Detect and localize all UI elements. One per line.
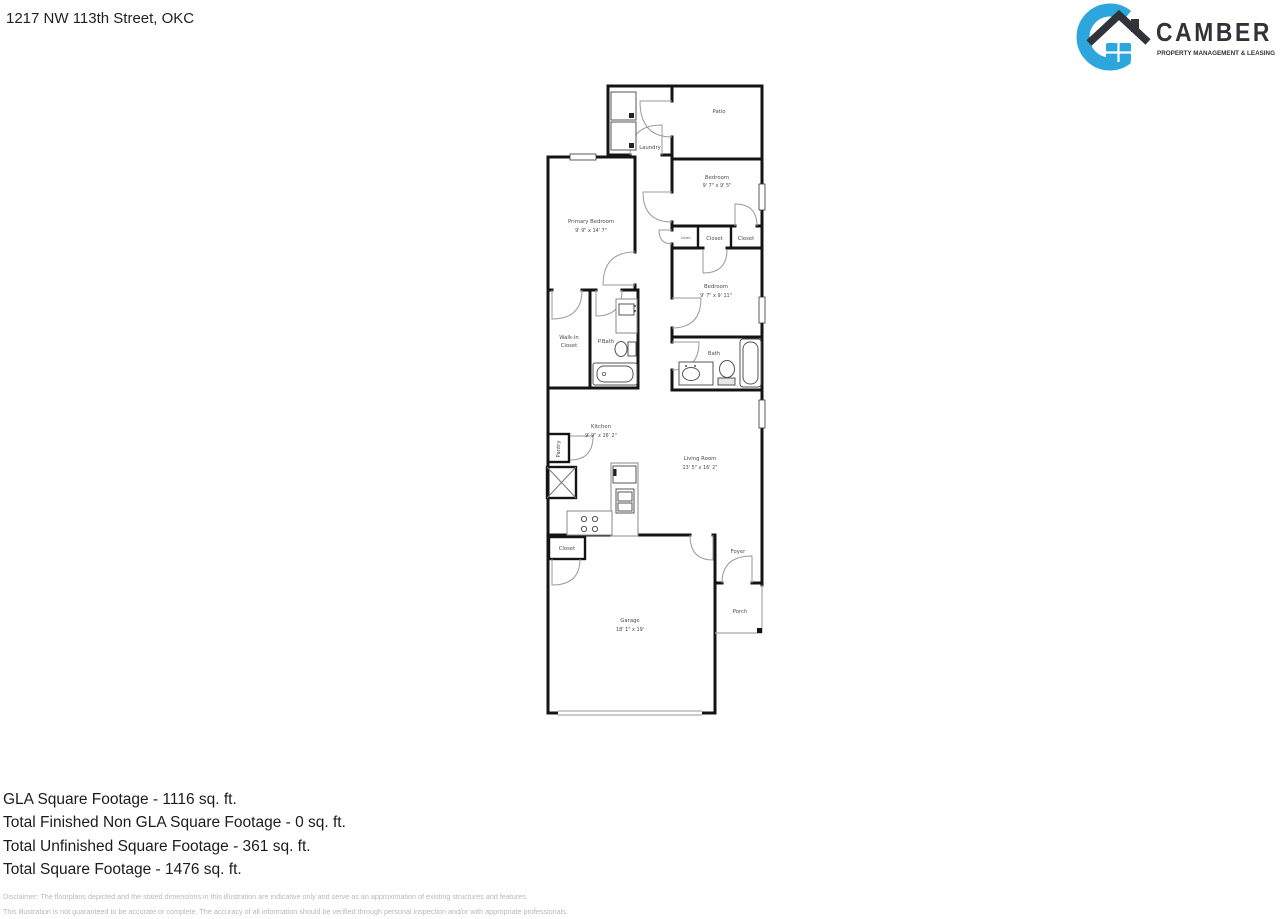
- unfinished-square-footage: Total Unfinished Square Footage - 361 sq…: [3, 835, 346, 858]
- room-label-linen: Linen: [681, 236, 690, 240]
- bath-toilet-icon: [720, 361, 735, 378]
- footage-summary: GLA Square Footage - 1116 sq. ft. Total …: [3, 788, 346, 881]
- room-label-laundry: Laundry: [639, 145, 661, 151]
- disclaimer: Disclaimer: The floorplans depicted and …: [3, 889, 568, 919]
- pbath-sink-icon: [619, 304, 634, 315]
- room-label-kitchen: Kitchen: [591, 424, 611, 430]
- window-icon: [759, 297, 765, 323]
- room-label-patio: Patio: [713, 109, 726, 115]
- room-label-garage: Garage: [620, 618, 639, 624]
- bath-toilet-tank: [718, 378, 735, 385]
- room-label-closet1: Closet: [706, 236, 723, 242]
- pbath-toilet-icon: [615, 342, 627, 357]
- floorplan-drawing: Laundry Patio Bedroom 9' 7" x 9' 5" Line…: [0, 0, 1280, 919]
- room-dims-living-room: 13' 5" x 16' 2": [683, 465, 718, 471]
- total-square-footage: Total Square Footage - 1476 sq. ft.: [3, 858, 346, 881]
- window-icon: [759, 400, 765, 428]
- room-label-bedroom2: Bedroom: [704, 284, 728, 290]
- room-label-pbath: P.Bath: [598, 339, 614, 345]
- gla-square-footage: GLA Square Footage - 1116 sq. ft.: [3, 788, 346, 811]
- room-label-closet2: Closet: [738, 236, 755, 242]
- room-label-bedroom1: Bedroom: [705, 175, 729, 181]
- floorplan-page: 1217 NW 113th Street, OKC CAMBER PROPERT…: [0, 0, 1280, 919]
- porch-post: [757, 628, 762, 633]
- room-dims-garage: 18' 1" x 19': [616, 627, 644, 633]
- room-label-pantry: Pantry: [556, 441, 562, 458]
- room-label-porch: Porch: [733, 609, 748, 615]
- room-label-walkin-2: Closet: [561, 343, 578, 349]
- room-label-bath: Bath: [708, 351, 720, 357]
- window-icon: [759, 184, 765, 210]
- disclaimer-line-1: Disclaimer: The floorplans depicted and …: [3, 889, 568, 904]
- pbath-toilet-tank: [628, 342, 636, 356]
- room-label-primary-bedroom: Primary Bedroom: [568, 219, 614, 225]
- bath-sink-icon: [683, 368, 700, 381]
- kitchen-counter-bottom: [567, 511, 612, 535]
- non-gla-square-footage: Total Finished Non GLA Square Footage - …: [3, 811, 346, 834]
- disclaimer-line-2: This illustration is not guaranteed to b…: [3, 904, 568, 919]
- walls: [547, 86, 762, 713]
- room-dims-bedroom1: 9' 7" x 9' 5": [703, 183, 732, 189]
- refrigerator-x-icon: [547, 467, 576, 498]
- room-dims-bedroom2: 9' 7" x 9' 11": [700, 293, 732, 299]
- room-dims-primary-bedroom: 9' 9" x 14' 7": [575, 228, 607, 234]
- window-icon: [570, 154, 596, 160]
- room-label-entry-closet: Closet: [559, 546, 576, 552]
- room-label-walkin-1: Walk-In: [559, 335, 579, 341]
- room-label-living-room: Living Room: [684, 456, 717, 462]
- room-label-foyer: Foyer: [731, 549, 746, 555]
- garage-door: [558, 709, 702, 717]
- room-dims-kitchen: 9' 9" x 16' 2": [585, 433, 617, 439]
